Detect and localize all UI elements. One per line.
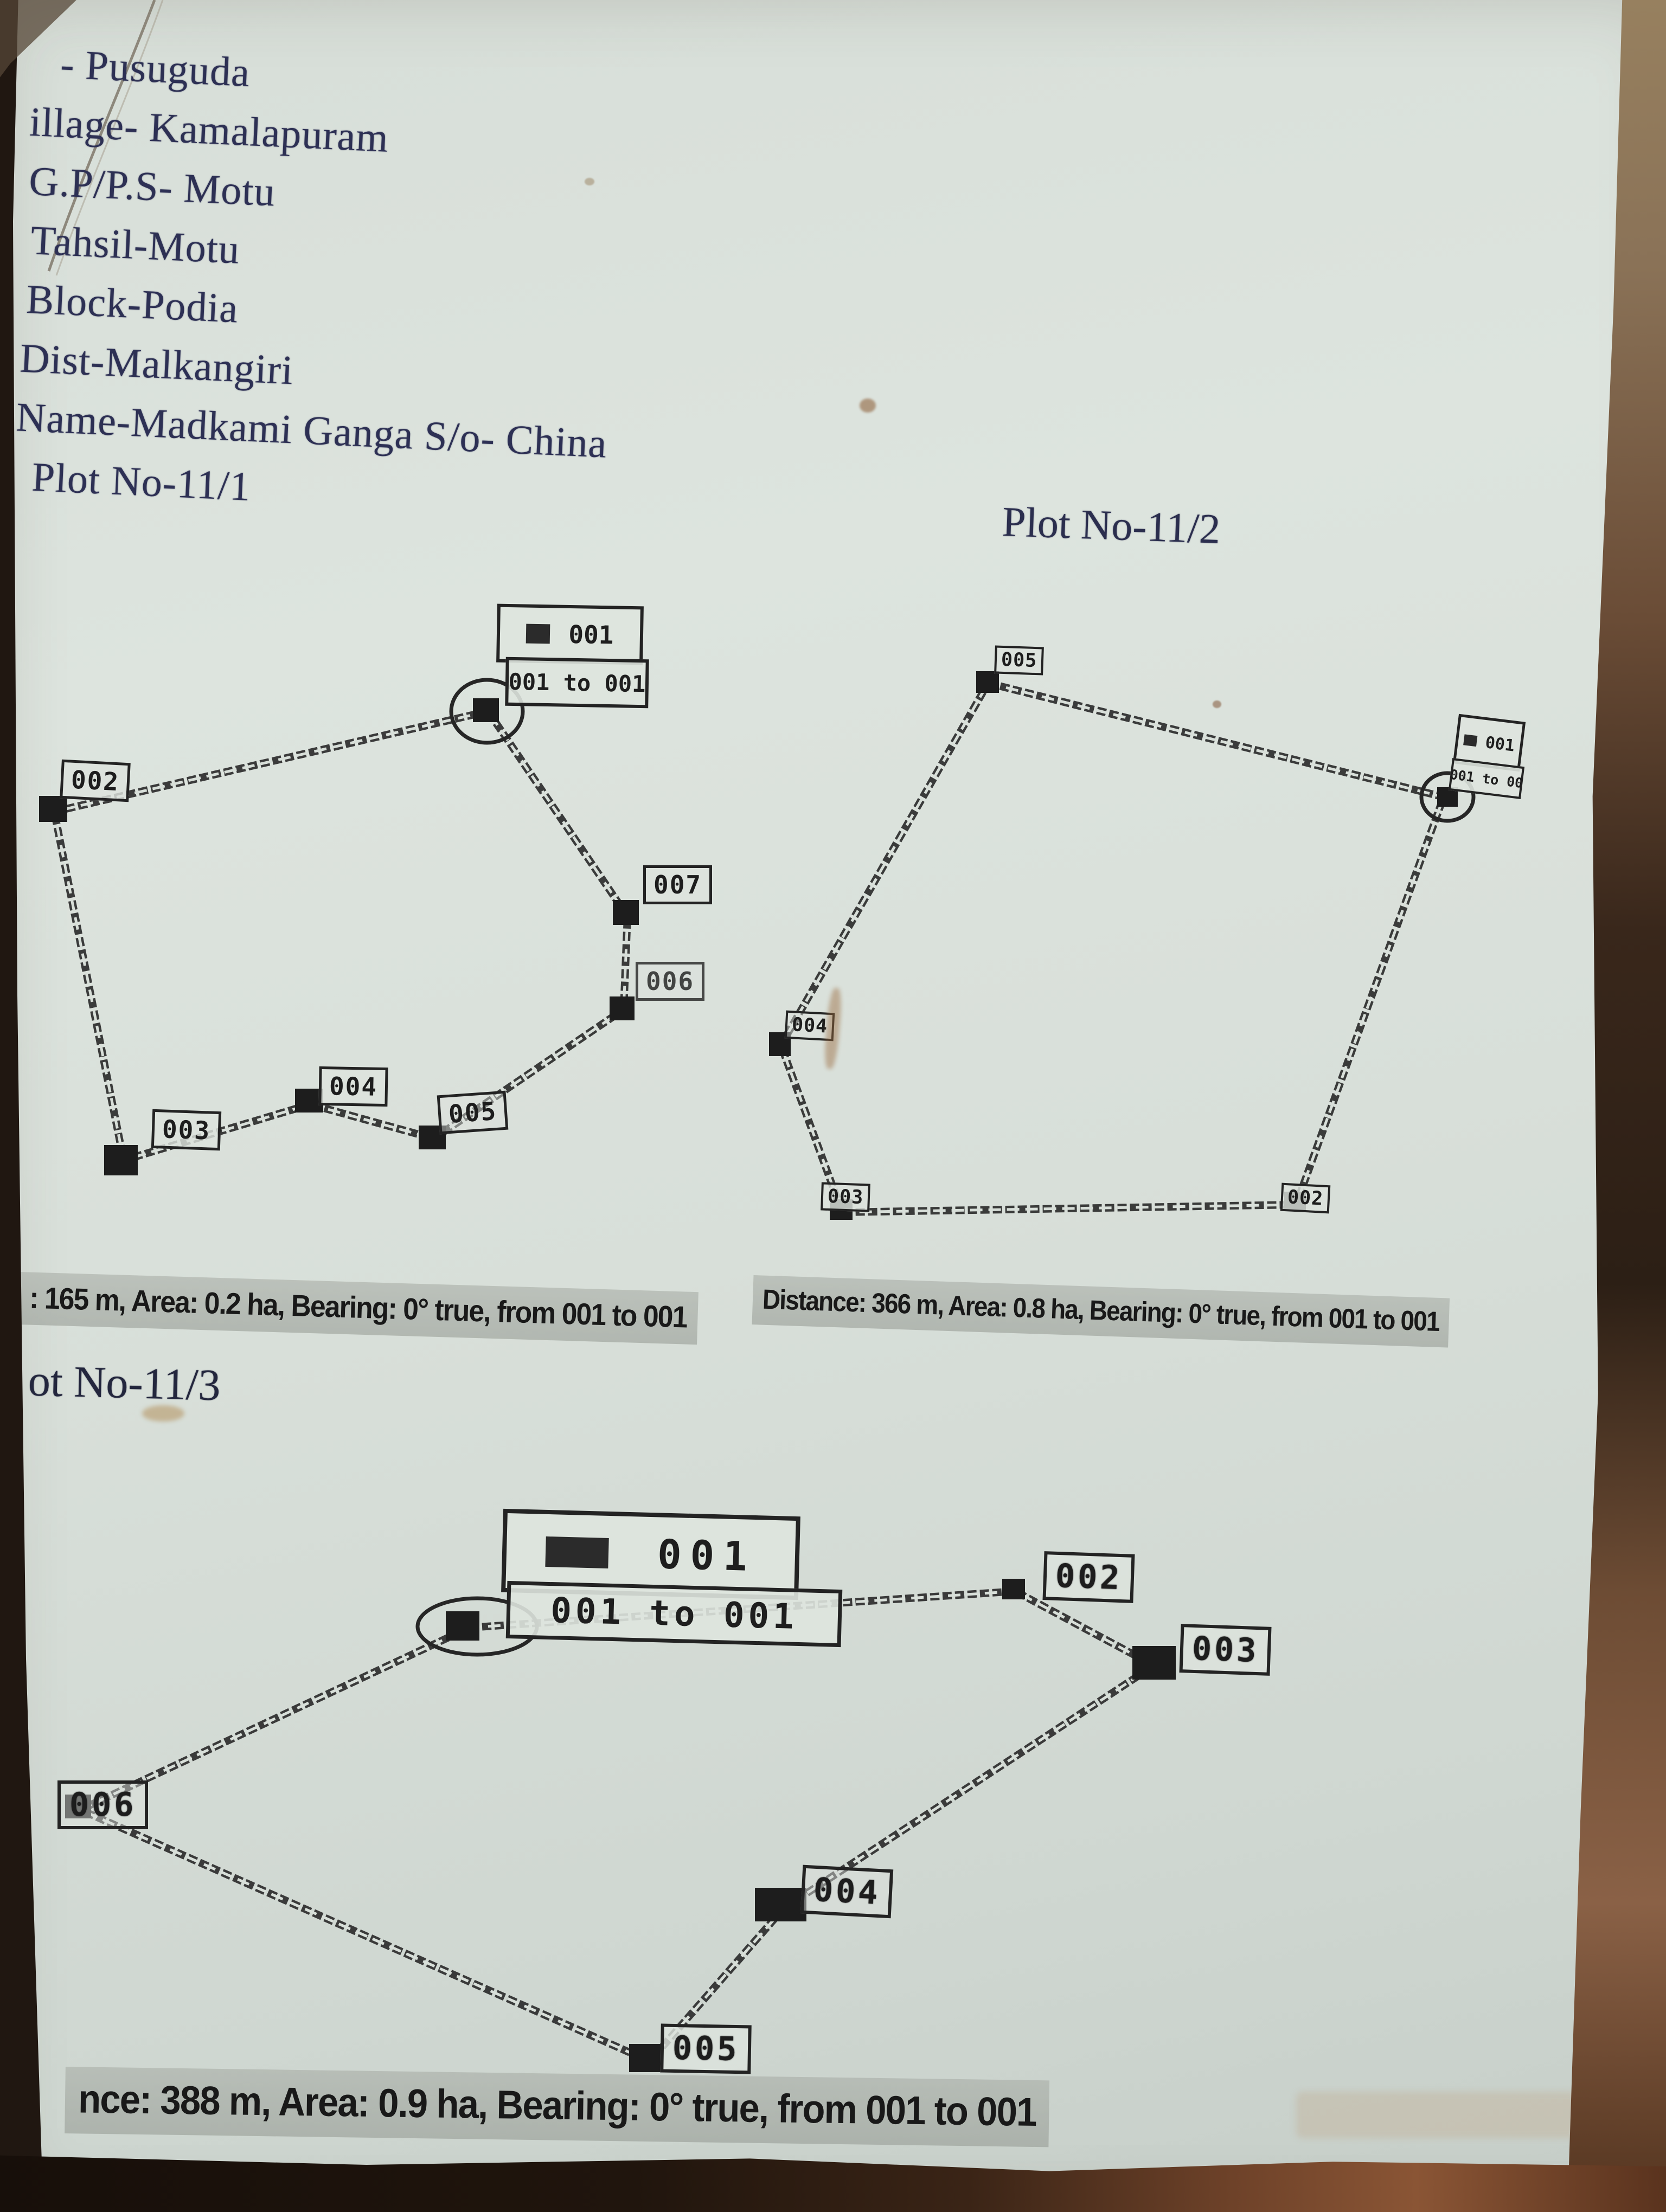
plot3-vertex-label-004: 004 xyxy=(800,1865,894,1919)
plot1-legend-point: 001 xyxy=(496,604,644,665)
plot3-vertex-001-marker xyxy=(446,1611,479,1641)
vertex-marker-icon xyxy=(526,624,550,644)
stain-speck xyxy=(585,178,594,185)
plot2-vertex-005-marker xyxy=(976,671,999,693)
plot1-vertex-001-marker xyxy=(473,698,499,722)
stain-spot xyxy=(860,398,876,413)
owner-details-block: - Pusuguda illage- Kamalapuram G.P/P.S- … xyxy=(12,34,987,549)
plot1-vertex-label-003: 003 xyxy=(151,1109,222,1150)
plot1-legend-range: 001 to 001 xyxy=(505,657,649,709)
plot3-vertex-label-005: 005 xyxy=(660,2024,752,2074)
plot1-legend-range-label: 001 to 001 xyxy=(508,668,646,697)
plot2-boundary-inner xyxy=(781,683,1444,1212)
plot3-vertex-004-marker xyxy=(755,1888,806,1921)
plot3-boundary-inner xyxy=(80,1591,1154,2061)
stain-smudge xyxy=(142,1405,184,1422)
plot1-legend-point-label: 001 xyxy=(568,620,614,650)
plot2-legend-range-label: 001 to 00 xyxy=(1449,766,1524,790)
plot2-boundary xyxy=(781,683,1444,1212)
plot2-vertex-label-002: 002 xyxy=(1280,1183,1331,1214)
plot3-measurements: nce: 388 m, Area: 0.9 ha, Bearing: 0° tr… xyxy=(65,2067,1049,2147)
vertex-marker-icon xyxy=(1463,734,1477,747)
plot1-vertex-002-marker xyxy=(39,796,67,822)
plot2-legend-point-label: 001 xyxy=(1484,733,1516,755)
plot3-vertex-label-003: 003 xyxy=(1179,1624,1271,1676)
plot1-vertex-label-006: 006 xyxy=(636,962,704,1001)
plot3-legend-range-label: 001 to 001 xyxy=(550,1591,798,1637)
plot1-vertex-label-005: 005 xyxy=(437,1091,509,1135)
faded-print-patch xyxy=(1296,2092,1578,2138)
plot1-vertex-label-004: 004 xyxy=(318,1066,388,1107)
plot3-legend-point-label: 001 xyxy=(657,1531,757,1580)
plot1-vertex-label-007: 007 xyxy=(643,865,712,904)
plot1-vertex-label-002: 002 xyxy=(60,760,131,802)
plot2-vertex-label-005: 005 xyxy=(994,645,1044,675)
plot2-vertex-label-003: 003 xyxy=(821,1182,870,1212)
plot3-vertex-002-marker xyxy=(1002,1579,1025,1599)
plot3-title: ot No-11/3 xyxy=(28,1355,221,1411)
plot3-vertex-label-002: 002 xyxy=(1042,1551,1135,1603)
plot1-vertex-006-marker xyxy=(610,996,635,1020)
plot3-vertex-label-006: 006 xyxy=(57,1780,148,1829)
stain-speck-2 xyxy=(1213,700,1221,708)
plot3-vertex-003-marker xyxy=(1132,1646,1176,1680)
plot2-title: Plot No-11/2 xyxy=(1002,497,1221,554)
plot3-vertex-005-marker xyxy=(629,2044,661,2072)
plot1-vertex-003-marker xyxy=(104,1145,138,1175)
vertex-marker-icon xyxy=(546,1536,609,1568)
plot1-vertex-007-marker xyxy=(613,900,639,925)
plot3-legend-range: 001 to 001 xyxy=(506,1581,843,1647)
plot3-boundary xyxy=(80,1591,1154,2061)
photographed-survey-document: - Pusuguda illage- Kamalapuram G.P/P.S- … xyxy=(0,0,1666,2212)
